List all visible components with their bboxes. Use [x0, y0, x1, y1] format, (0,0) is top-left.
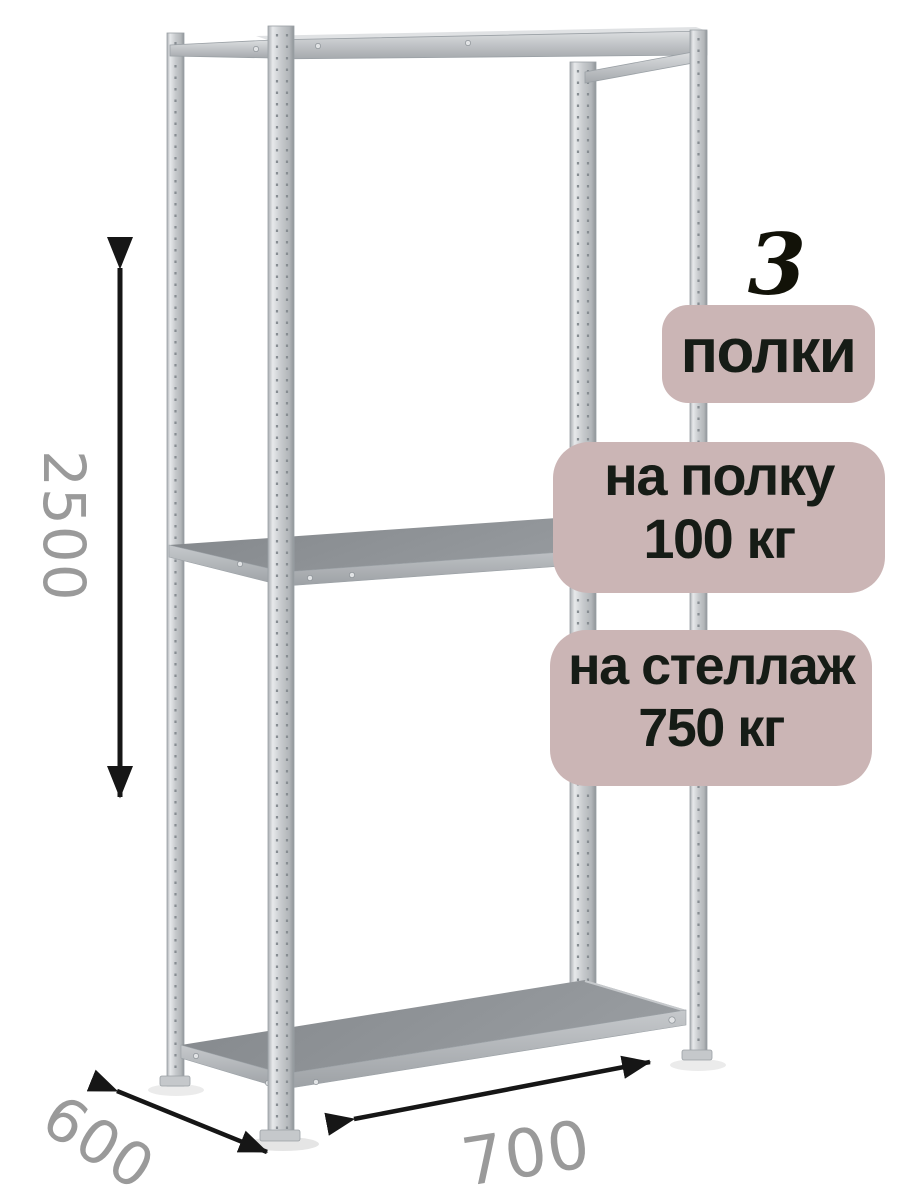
- bolt: [193, 1053, 198, 1058]
- bottom-shelf: [181, 980, 686, 1089]
- per-rack-load-line1: на стеллаж: [568, 636, 856, 696]
- bolt: [237, 561, 242, 566]
- info-badges: 3 полки на полку 100 кг на стеллаж 750 к…: [550, 215, 885, 786]
- top-shelf: [170, 27, 707, 83]
- per-rack-load-line2: 750 кг: [638, 698, 785, 758]
- post-foot: [160, 1076, 190, 1086]
- bolt: [253, 46, 258, 51]
- shelves-count-number: 3: [748, 215, 806, 314]
- shadow-front-right: [670, 1059, 726, 1071]
- shelves-count-badge: полки: [662, 305, 875, 403]
- bolt: [669, 1017, 675, 1023]
- bolt: [349, 572, 354, 577]
- bolt: [313, 1079, 318, 1084]
- width-dimension-label: 700: [456, 1106, 595, 1200]
- rack-post-front-left: [260, 26, 300, 1141]
- post-foot: [682, 1050, 712, 1060]
- per-shelf-load-line1: на полку: [604, 444, 835, 507]
- product-image: 2500 600 700 3 полки на полку 100 кг на …: [0, 0, 900, 1200]
- post-foot: [260, 1130, 300, 1141]
- per-shelf-load-line2: 100 кг: [643, 507, 795, 570]
- per-shelf-load-badge: на полку 100 кг: [553, 442, 885, 593]
- shelves-count-label: полки: [681, 317, 856, 386]
- per-rack-load-badge: на стеллаж 750 кг: [550, 630, 872, 786]
- bolt: [465, 40, 470, 45]
- top-shelf-side-beam-right: [585, 52, 693, 83]
- bolt: [315, 43, 320, 48]
- height-dimension-label: 2500: [30, 450, 98, 602]
- product-illustration: 2500 600 700 3 полки на полку 100 кг на …: [0, 0, 900, 1200]
- bolt: [307, 575, 312, 580]
- depth-dimension-label: 600: [30, 1082, 167, 1200]
